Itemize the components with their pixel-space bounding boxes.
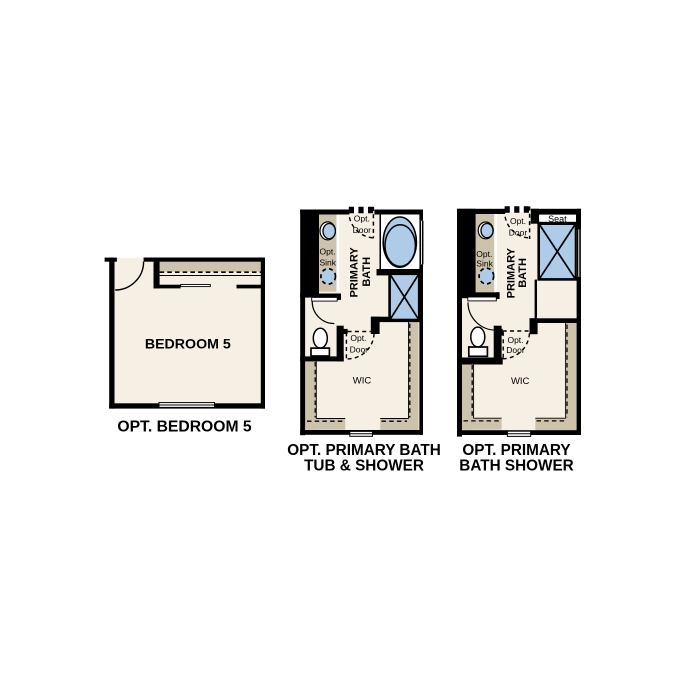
svg-text:Sink: Sink [476,259,493,269]
svg-text:PRIMARY: PRIMARY [348,247,360,298]
svg-text:WIC: WIC [511,376,530,387]
svg-text:Opt.: Opt. [510,216,526,226]
svg-text:BATH SHOWER: BATH SHOWER [459,457,573,474]
svg-text:PRIMARY: PRIMARY [505,247,517,298]
svg-text:Opt.: Opt. [320,246,336,256]
svg-text:BEDROOM 5: BEDROOM 5 [145,337,231,353]
svg-text:WIC: WIC [353,375,372,386]
svg-text:Door: Door [353,225,372,235]
svg-text:TUB & SHOWER: TUB & SHOWER [304,457,424,474]
svg-text:Door: Door [509,228,528,238]
svg-text:OPT. BEDROOM 5: OPT. BEDROOM 5 [117,419,252,436]
svg-text:Opt.: Opt. [354,214,370,224]
svg-text:Opt.: Opt. [476,249,492,259]
svg-text:Door: Door [506,345,525,355]
svg-text:Opt.: Opt. [350,333,366,343]
svg-text:Door: Door [350,344,369,354]
svg-text:Opt.: Opt. [507,335,523,345]
svg-text:BATH: BATH [517,258,529,288]
svg-text:BATH: BATH [361,257,373,287]
svg-text:Sink: Sink [320,258,337,268]
